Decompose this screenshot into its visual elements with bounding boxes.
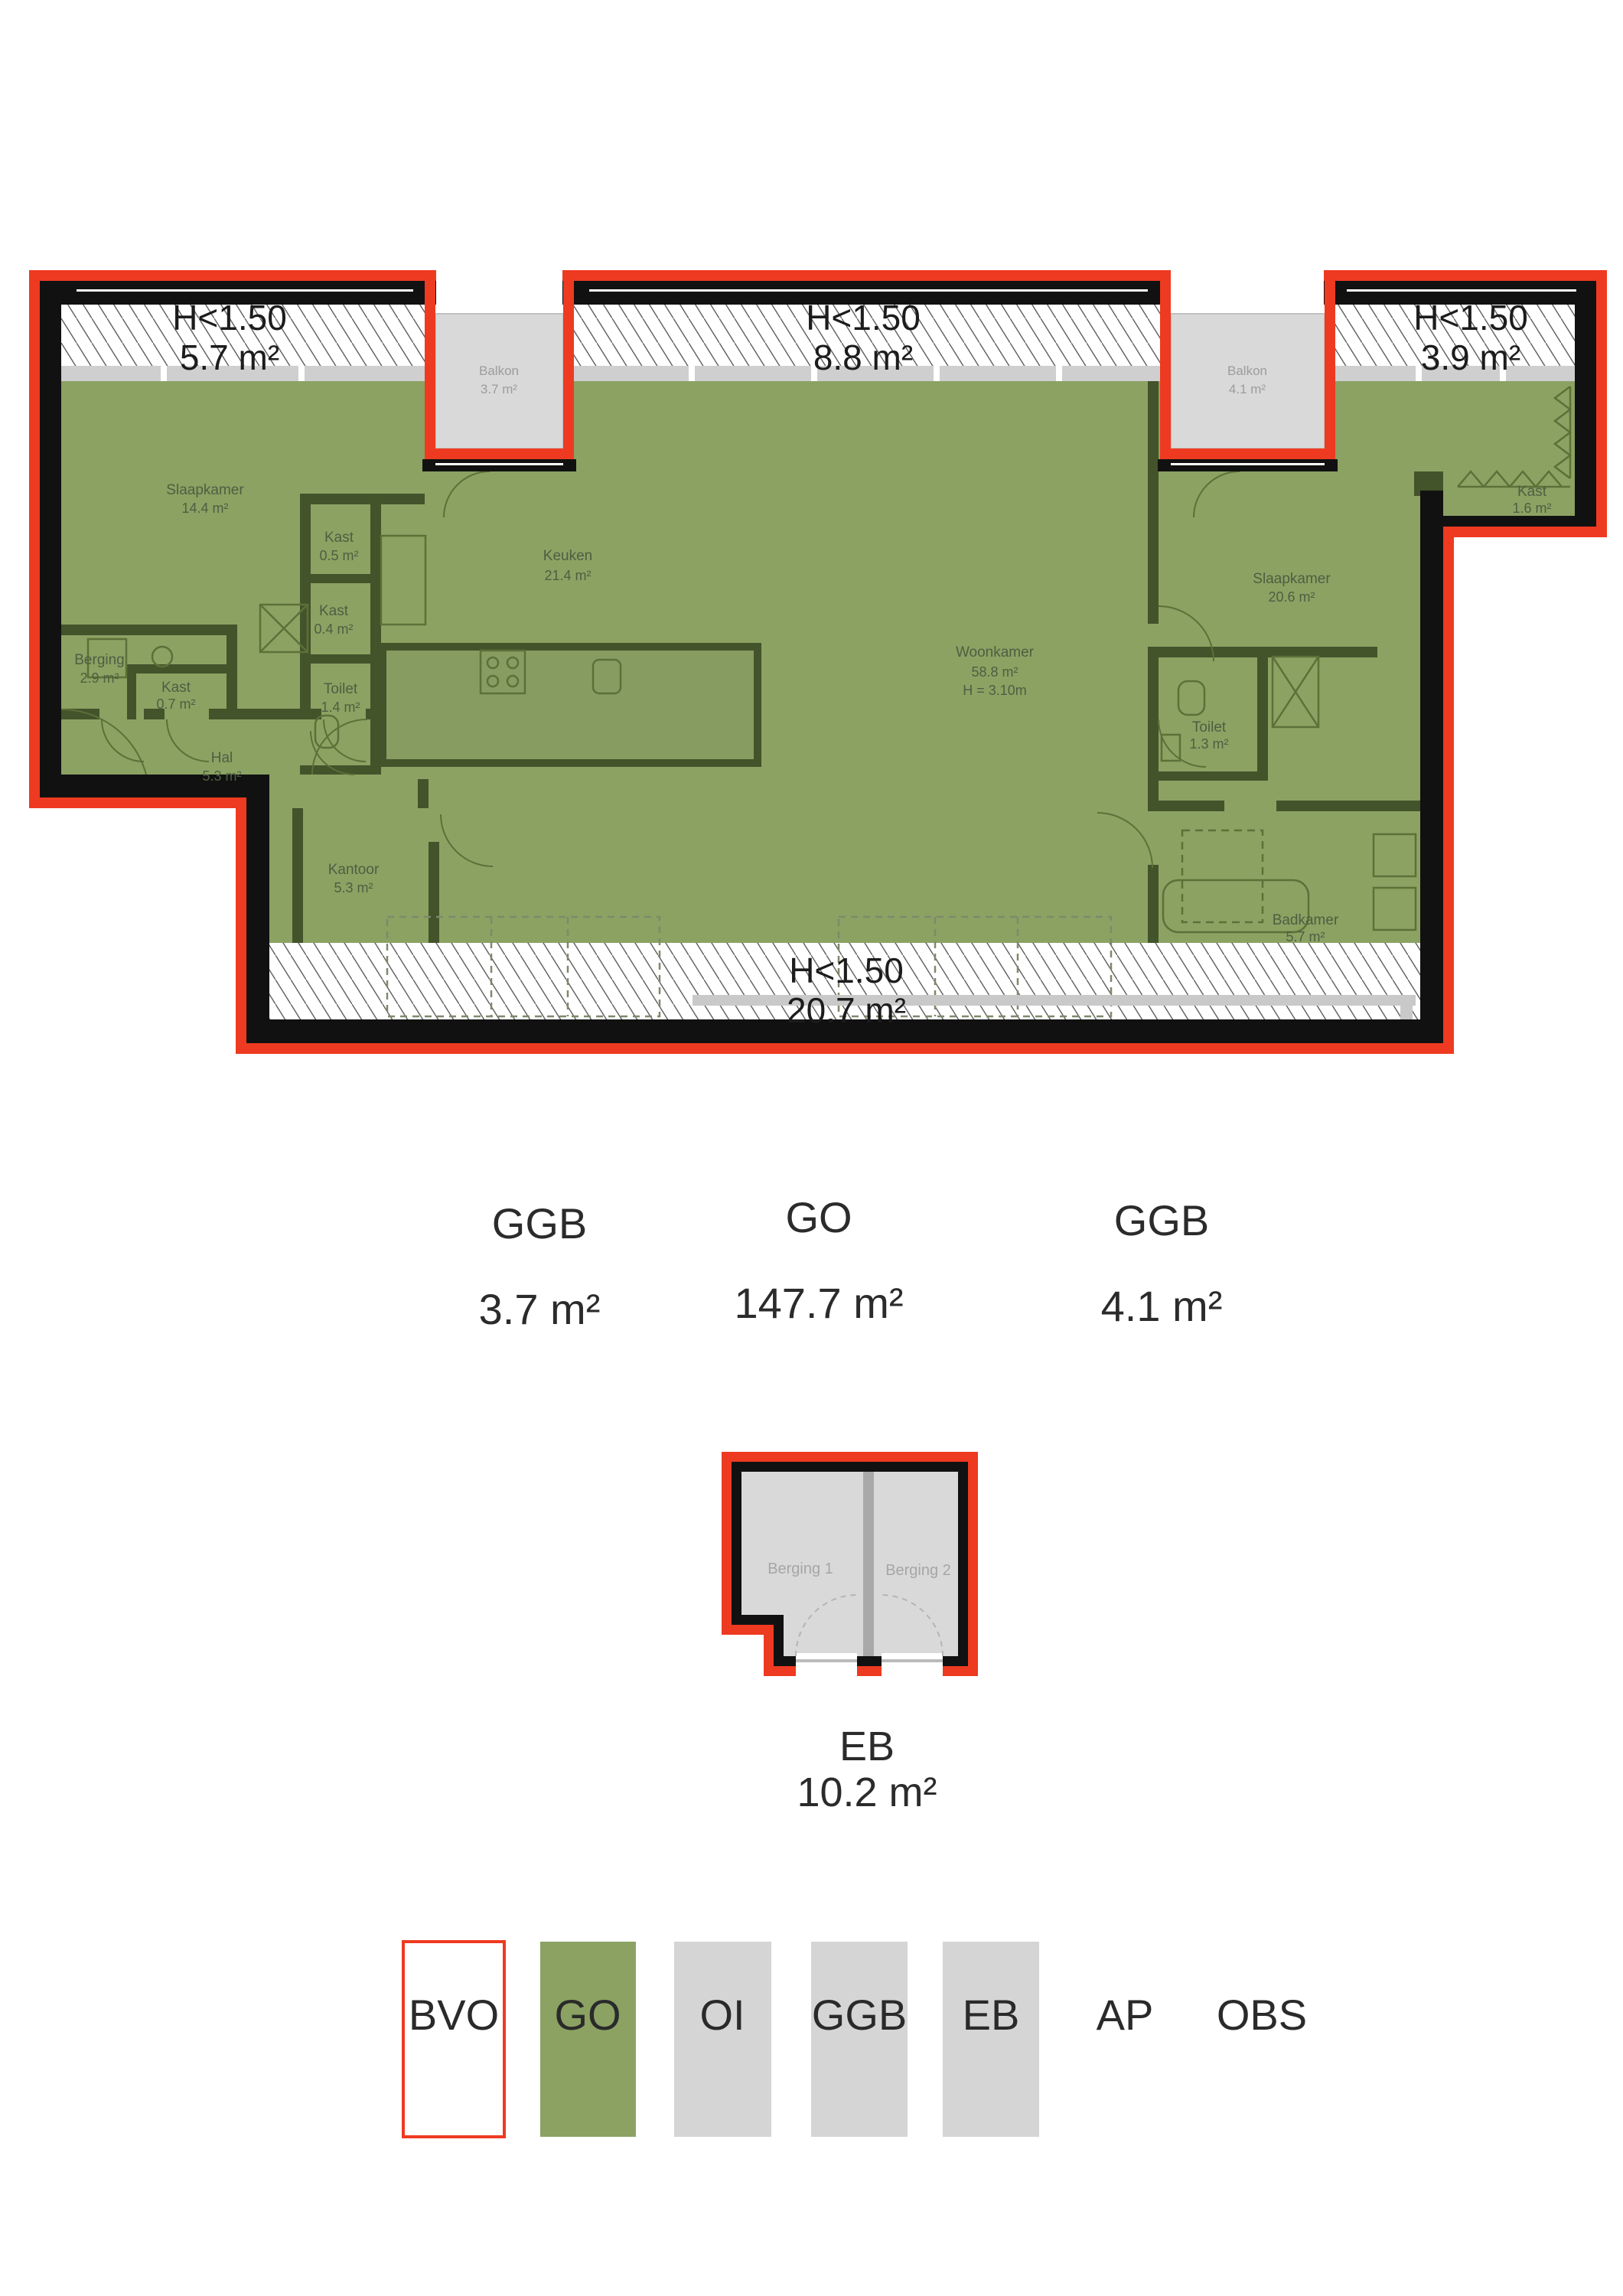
window-line — [589, 289, 1148, 292]
bvo-edge — [29, 797, 246, 808]
storage-door-gap — [882, 1653, 943, 1676]
hatch-area: 3.9 m² — [1421, 338, 1520, 377]
storage-door-sill — [796, 1659, 857, 1662]
room-area: 58.8 m² — [971, 664, 1018, 680]
wall-segment — [305, 574, 370, 583]
legend-swatch-ggb — [811, 1942, 908, 2137]
room-area: 20.6 m² — [1268, 589, 1315, 605]
wall-segment — [1148, 652, 1159, 811]
room-name: Slaapkamer — [166, 482, 244, 498]
bvo-edge — [425, 448, 574, 459]
wall-segment — [127, 664, 227, 673]
window-line — [1171, 463, 1325, 465]
legend-label: OI — [699, 1991, 745, 2039]
room-height: H = 3.10m — [963, 683, 1027, 698]
balcony-1-floor — [435, 314, 563, 448]
wall-segment — [1257, 657, 1268, 771]
storage-unit-name: Berging 1 — [768, 1561, 833, 1577]
legend-swatch-oi — [674, 1942, 771, 2137]
kitchen-island — [383, 647, 758, 763]
bvo-edge — [1443, 527, 1454, 1054]
legend-swatch-eb — [943, 1942, 1039, 2137]
room-name: Slaapkamer — [1253, 571, 1331, 587]
bvo-edge — [1325, 270, 1335, 459]
room-name: Toilet — [324, 681, 358, 697]
bvo-edge — [563, 270, 574, 459]
window-line — [77, 289, 413, 292]
storage-block: Berging 1 Berging 2 EB 10.2 m² — [722, 1452, 978, 1815]
room-area: 14.4 m² — [181, 501, 228, 516]
bvo-edge — [1443, 527, 1607, 537]
storage-code: EB — [839, 1724, 895, 1769]
legend-item-eb: EB — [943, 1942, 1039, 2137]
room-name: Berging — [74, 652, 125, 668]
bvo-edge — [29, 270, 40, 808]
room-area: 21.4 m² — [544, 568, 591, 583]
balcony-1-name: Balkon — [479, 364, 519, 378]
room-area: 1.3 m² — [1189, 736, 1228, 752]
storage-divider — [863, 1472, 874, 1656]
wall-segment — [300, 494, 425, 504]
legend-label-obs: OBS — [1217, 1991, 1307, 2039]
bvo-edge — [1324, 270, 1607, 281]
wall-segment — [418, 779, 429, 808]
storage-door-gap — [796, 1653, 857, 1676]
wall-black — [1420, 491, 1443, 1043]
wall-segment — [61, 625, 237, 635]
wall-segment — [209, 709, 321, 719]
sill-gap — [161, 366, 167, 381]
bvo-edge — [29, 270, 436, 281]
wall-black — [1575, 281, 1596, 537]
wall-segment — [1148, 771, 1268, 781]
legend-label: GO — [554, 1991, 621, 2039]
legend-label: BVO — [409, 1991, 499, 2039]
meas-code: GGB — [1114, 1196, 1209, 1244]
room-area: 0.4 m² — [314, 621, 353, 637]
room-area: 2.9 m² — [80, 670, 119, 686]
room-name: Kast — [319, 603, 349, 619]
bvo-edge — [1596, 270, 1607, 537]
bvo-edge — [236, 1043, 1454, 1054]
legend-item-oi: OI — [674, 1942, 771, 2137]
wall-segment — [305, 654, 370, 664]
wall-segment — [1148, 647, 1377, 657]
balcony-1: Balkon 3.7 m² — [435, 314, 563, 448]
bvo-edge — [425, 270, 435, 459]
legend-item-ggb: GGB — [811, 1942, 908, 2137]
wall-segment — [227, 625, 237, 719]
wall-segment — [292, 808, 303, 943]
cutout-bottom-left — [29, 808, 236, 1054]
meas-code: GGB — [492, 1199, 587, 1247]
room-name: Badkamer — [1273, 912, 1339, 928]
hatch-label: H<1.50 — [789, 951, 904, 990]
wall-segment — [429, 842, 439, 943]
balcony-2: Balkon 4.1 m² — [1171, 314, 1325, 448]
wall-segment — [1148, 865, 1159, 943]
wall-segment — [127, 664, 136, 719]
room-name: Woonkamer — [956, 644, 1035, 660]
storage-door-sill — [882, 1659, 943, 1662]
hatch-label: H<1.50 — [806, 298, 921, 338]
hatch-label: H<1.50 — [1413, 298, 1528, 338]
legend-label-ap: AP — [1097, 1991, 1154, 2039]
legend-label: GGB — [812, 1991, 907, 2039]
sill-gap — [689, 366, 695, 381]
room-name: Kast — [1517, 484, 1547, 500]
storage-unit-name: Berging 2 — [885, 1562, 951, 1579]
balcony-2-area: 4.1 m² — [1229, 382, 1266, 396]
room-name: Hal — [211, 750, 233, 766]
wall-segment — [1148, 381, 1159, 624]
main-floor-plan: Balkon 3.7 m² Balkon 4.1 m² — [29, 270, 1607, 1054]
room-name: Kantoor — [328, 862, 380, 878]
hatch-area: 8.8 m² — [813, 338, 913, 377]
legend-swatch-go — [540, 1942, 636, 2137]
legend-label: EB — [963, 1991, 1020, 2039]
floorplan-canvas: Balkon 3.7 m² Balkon 4.1 m² — [0, 0, 1623, 2296]
meas-area: 147.7 m² — [735, 1279, 904, 1327]
balustrade-strip — [1400, 995, 1413, 1019]
measurement-labels: GGB 3.7 m² GO 147.7 m² GGB 4.1 m² — [479, 1193, 1223, 1333]
meas-code: GO — [785, 1193, 852, 1241]
legend-item-bvo: BVO — [403, 1942, 504, 2137]
hatch-area: 20.7 m² — [787, 990, 906, 1030]
room-area: 5.3 m² — [334, 880, 373, 895]
meas-area: 4.1 m² — [1101, 1282, 1223, 1330]
room-name: Kast — [324, 530, 354, 546]
room-area: 5.7 m² — [1286, 929, 1325, 944]
storage-area: 10.2 m² — [797, 1769, 937, 1815]
room-area: 1.4 m² — [321, 700, 360, 715]
bvo-edge — [1160, 270, 1171, 459]
room-area: 1.6 m² — [1512, 501, 1551, 516]
wall-black — [1420, 516, 1596, 527]
wall-black — [40, 281, 61, 797]
meas-area: 3.7 m² — [479, 1285, 601, 1333]
legend: BVO GO OI GGB EB AP OBS — [403, 1942, 1307, 2137]
balcony-2-name: Balkon — [1227, 364, 1267, 378]
hatch-area: 5.7 m² — [180, 338, 279, 377]
bvo-edge — [562, 270, 1171, 281]
room-name: Toilet — [1192, 719, 1227, 735]
room-area: 0.7 m² — [156, 696, 195, 712]
cutout-right — [1454, 537, 1575, 943]
island-outline — [383, 647, 758, 763]
bvo-edge — [236, 797, 246, 1054]
room-name: Kast — [161, 680, 191, 696]
wall-segment — [1276, 801, 1420, 811]
go-area-fill — [61, 381, 1575, 943]
balcony-2-floor — [1171, 314, 1325, 448]
window-line — [1347, 289, 1576, 292]
room-area: 5.3 m² — [202, 768, 241, 784]
wall-black — [246, 775, 269, 1054]
window-line — [435, 463, 563, 465]
sill-gap — [298, 366, 305, 381]
balcony-1-area: 3.7 m² — [481, 382, 518, 396]
bvo-edge — [1160, 448, 1335, 459]
room-name: Keuken — [543, 548, 592, 564]
room-area: 0.5 m² — [319, 548, 358, 563]
sill-gap — [1056, 366, 1062, 381]
wall-segment — [1148, 801, 1224, 811]
sill-gap — [934, 366, 940, 381]
floorplan-page: Balkon 3.7 m² Balkon 4.1 m² — [0, 0, 1623, 2296]
hatch-label: H<1.50 — [172, 298, 287, 338]
legend-item-go: GO — [540, 1942, 636, 2137]
legend-swatch-bvo — [403, 1942, 504, 2137]
